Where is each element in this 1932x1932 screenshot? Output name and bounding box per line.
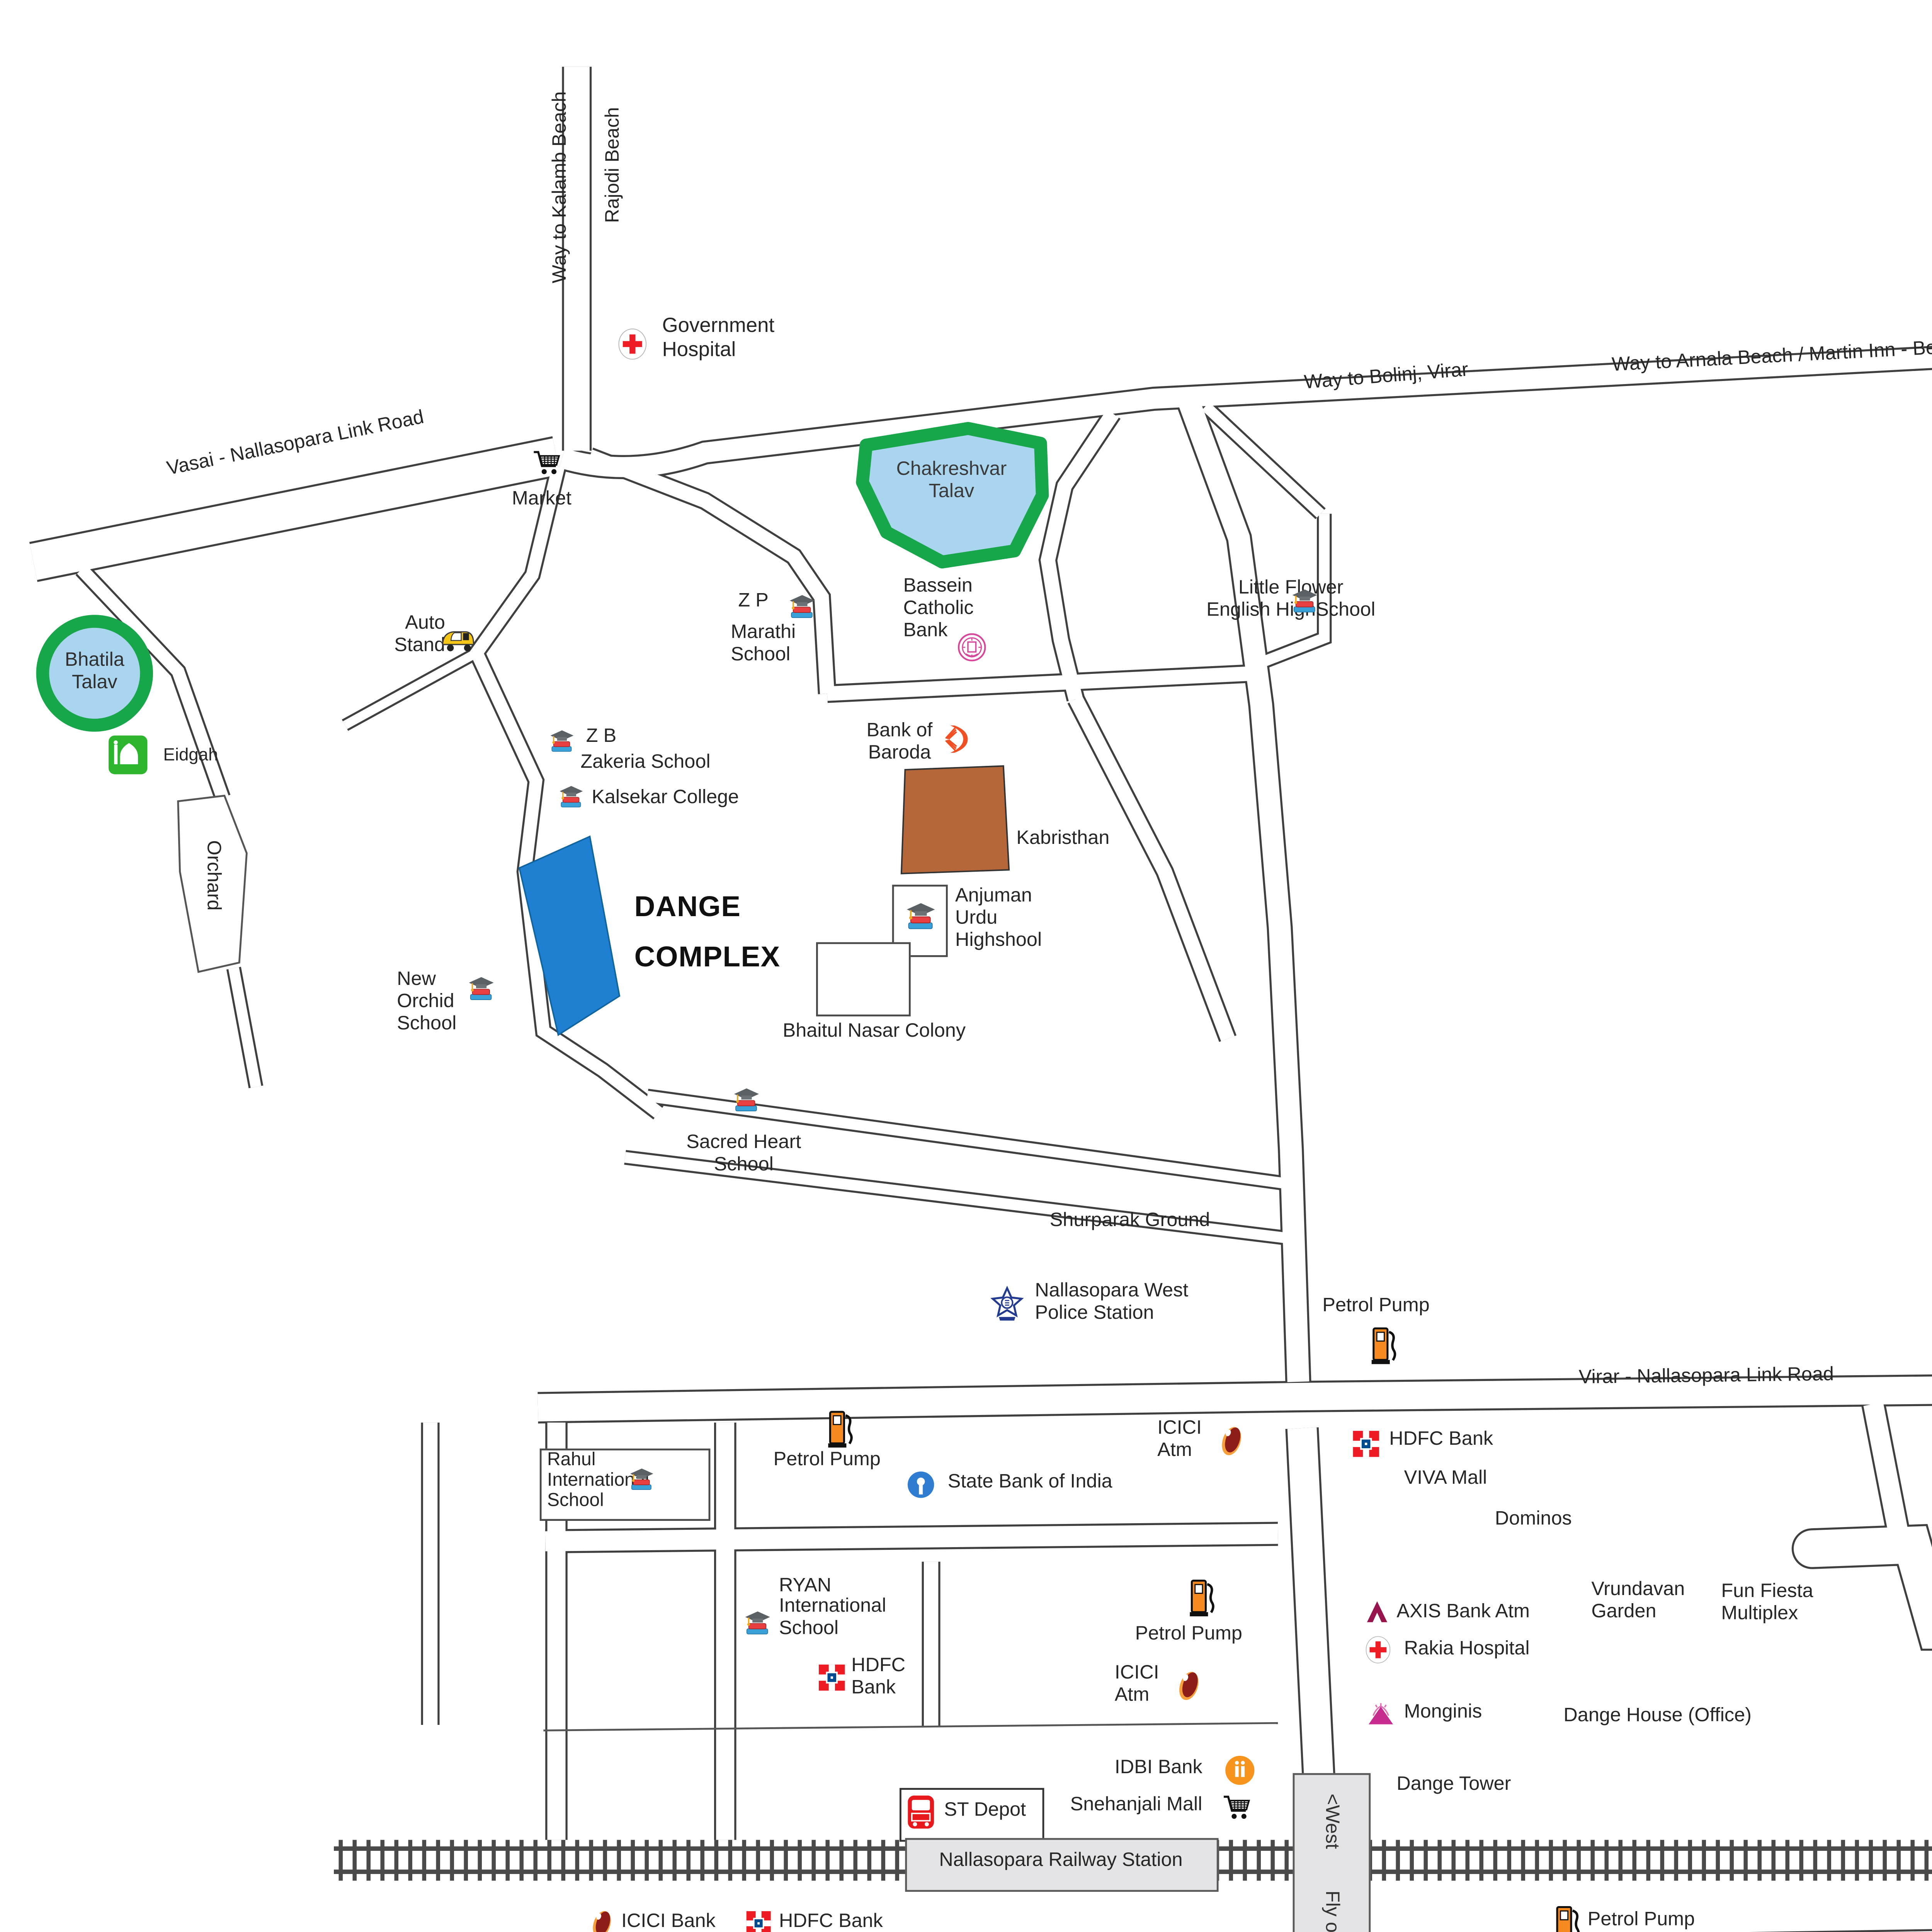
label-way-to-kalamb-beach: Way to Kalamb Beach xyxy=(551,67,573,308)
school-icon xyxy=(466,976,497,1003)
label-virar-nallasopara-link-road-top: Virar - Nallasopara Link Road xyxy=(1539,1365,1874,1391)
label-dange-tower: Dange Tower xyxy=(1396,1775,1511,1797)
map-viewport: Way to Kalamb Beach Rajodi Beach Governm… xyxy=(0,0,1932,1932)
label-fun-fiesta-multiplex: Fun Fiesta Multiplex xyxy=(1721,1582,1813,1626)
label-monginis: Monginis xyxy=(1404,1702,1482,1725)
label-sacred-heart-school: Sacred Heart School xyxy=(672,1133,816,1178)
axis-logo xyxy=(1365,1600,1389,1623)
icici-logo xyxy=(1174,1669,1204,1702)
bcb-seal xyxy=(957,633,987,662)
school-icon xyxy=(556,784,586,810)
label-kalsekar-college: Kalsekar College xyxy=(592,788,739,810)
label-dange-complex: DANGE COMPLEX xyxy=(634,885,781,984)
kabristhan-parcel xyxy=(901,766,1009,873)
label-vrundavan-garden: Vrundavan Garden xyxy=(1591,1580,1685,1625)
petrol-pump-icon xyxy=(1554,1903,1580,1932)
petrol-pump-icon xyxy=(827,1408,853,1450)
hdfc-logo xyxy=(746,1910,772,1932)
school-icon xyxy=(731,1087,762,1115)
label-bhatila-talav: Bhatila Talav xyxy=(48,651,141,696)
icici-logo xyxy=(1217,1424,1247,1458)
label-new-orchid-school: New Orchid School xyxy=(397,970,456,1036)
label-petrol-pump-market-block: Petrol Pump xyxy=(774,1451,881,1473)
monginis-logo xyxy=(1365,1699,1397,1727)
school-icon xyxy=(786,594,818,621)
st-bus-icon xyxy=(907,1794,935,1831)
label-orchard: Orchard xyxy=(200,820,222,931)
petrol-pump-icon xyxy=(1371,1324,1396,1367)
label-state-bank-of-india: State Bank of India xyxy=(948,1473,1112,1495)
bhaitul-nasar-colony-block xyxy=(816,942,911,1016)
label-dominos: Dominos xyxy=(1495,1510,1572,1532)
label-flyover-west: <West xyxy=(1319,1784,1341,1859)
label-bank-of-baroda-top: Bank of Baroda xyxy=(844,721,955,766)
label-bhaitul-nasar-colony: Bhaitul Nasar Colony xyxy=(783,1022,966,1044)
label-icici-atm-top: ICICI Atm xyxy=(1157,1419,1202,1463)
label-nallasopara-railway-station: Nallasopara Railway Station xyxy=(913,1851,1209,1873)
cart-icon xyxy=(1222,1794,1252,1821)
label-zakeria-school: Zakeria School xyxy=(580,753,710,775)
sbi-logo xyxy=(907,1471,935,1498)
label-chakreshvar-talav: Chakreshvar Talav xyxy=(886,460,1016,504)
label-anjuman-urdu-highshool: Anjuman Urdu Highshool xyxy=(955,886,1042,953)
label-kabristhan: Kabristhan xyxy=(1016,829,1109,851)
hospital-cross-icon xyxy=(1365,1634,1391,1666)
label-hdfc-bank-below: HDFC Bank xyxy=(779,1912,883,1932)
label-snehanjali-mall: Snehanjali Mall xyxy=(1070,1795,1202,1817)
label-hdfc-bank-top: HDFC Bank xyxy=(1389,1430,1493,1452)
school-icon xyxy=(742,1610,774,1638)
label-hdfc-bank-center: HDFC Bank xyxy=(851,1656,905,1701)
label-flyover: Fly over xyxy=(1319,1877,1341,1932)
road-network xyxy=(0,0,1932,1932)
label-eidgah: Eidgah xyxy=(163,747,218,767)
label-zb: Z B xyxy=(586,727,616,749)
roads-casing xyxy=(22,67,1932,1932)
label-icici-atm-center: ICICI Atm xyxy=(1115,1664,1159,1708)
hdfc-logo xyxy=(1352,1430,1380,1458)
school-icon xyxy=(627,1467,656,1493)
hdfc-logo xyxy=(818,1664,846,1692)
label-st-depot: ST Depot xyxy=(944,1801,1026,1823)
label-nallasopara-west-police-station: Nallasopara West Police Station xyxy=(1035,1282,1188,1326)
cart-icon xyxy=(532,449,562,477)
label-idbi-bank: IDBI Bank xyxy=(1115,1758,1202,1780)
label-petrol-pump-police-area: Petrol Pump xyxy=(1322,1296,1429,1318)
roads-surface xyxy=(22,67,1932,1932)
label-shurparak-ground: Shurparak Ground xyxy=(1050,1211,1210,1233)
idbi-logo xyxy=(1224,1755,1256,1786)
label-dange-house-office: Dange House (Office) xyxy=(1563,1706,1752,1728)
eidgah-icon xyxy=(107,735,148,776)
bob-logo xyxy=(942,723,974,755)
school-icon xyxy=(903,901,939,933)
label-petrol-pump-right: Petrol Pump xyxy=(1588,1910,1695,1932)
school-icon xyxy=(1289,588,1321,616)
label-petrol-pump-block-d: Petrol Pump xyxy=(1135,1625,1242,1647)
label-zp-marathi-school: Marathi School xyxy=(731,623,796,668)
label-rajodi-beach: Rajodi Beach xyxy=(604,77,626,253)
icici-logo xyxy=(588,1908,616,1932)
label-rakia-hospital: Rakia Hospital xyxy=(1404,1639,1530,1662)
school-icon xyxy=(547,729,577,755)
label-government-hospital: Government Hospital xyxy=(662,315,775,362)
auto-rickshaw-icon xyxy=(440,627,477,653)
label-viva-mall: VIVA Mall xyxy=(1404,1469,1487,1491)
label-auto-stand: Auto Stand xyxy=(367,614,445,658)
label-axis-bank-atm-top: AXIS Bank Atm xyxy=(1396,1602,1530,1624)
hospital-cross-icon xyxy=(617,327,647,362)
label-zp: Z P xyxy=(738,592,768,614)
petrol-pump-icon xyxy=(1189,1577,1215,1619)
label-market: Market xyxy=(512,490,571,512)
label-icici-bank-below: ICICI Bank xyxy=(621,1912,716,1932)
police-star-icon xyxy=(990,1285,1024,1324)
dange-complex-location-map: Way to Kalamb Beach Rajodi Beach Governm… xyxy=(0,0,1932,1932)
label-ryan-international-school: RYAN International School xyxy=(779,1577,886,1639)
